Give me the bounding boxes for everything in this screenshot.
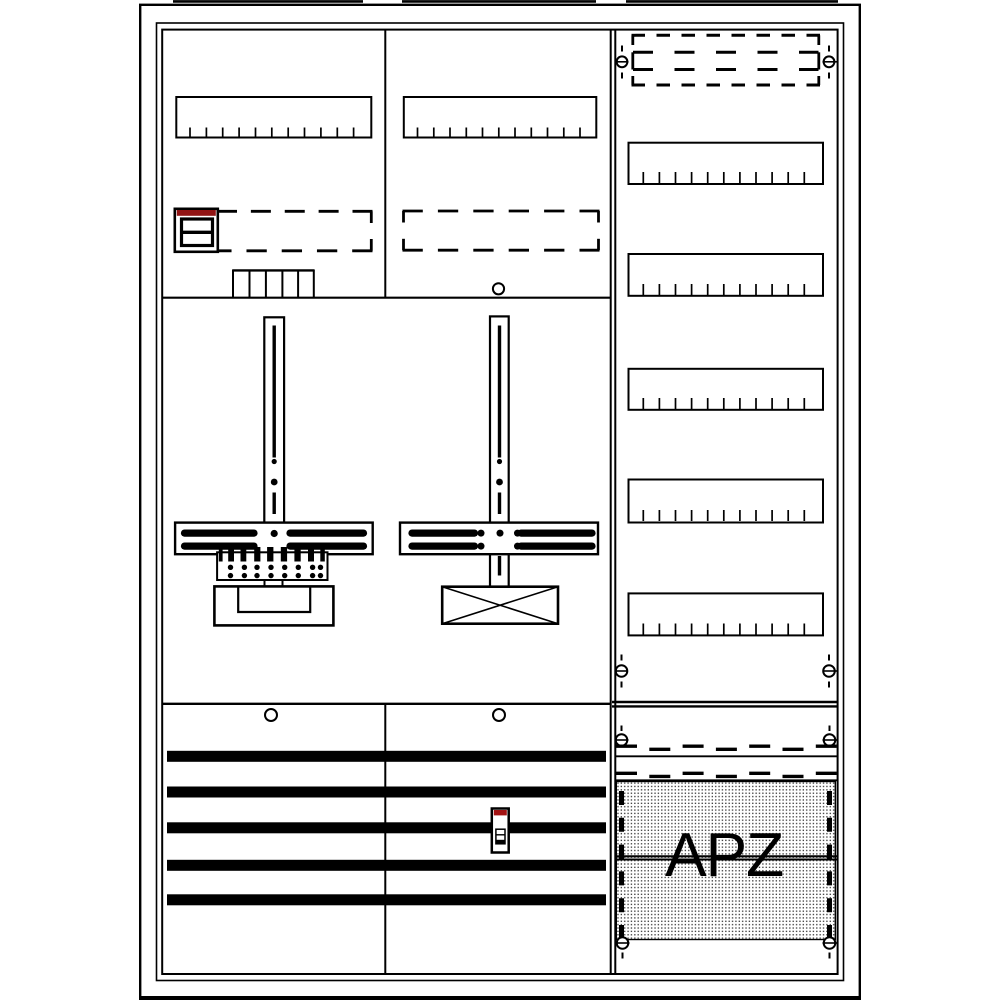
svg-text:APZ: APZ: [665, 820, 783, 890]
